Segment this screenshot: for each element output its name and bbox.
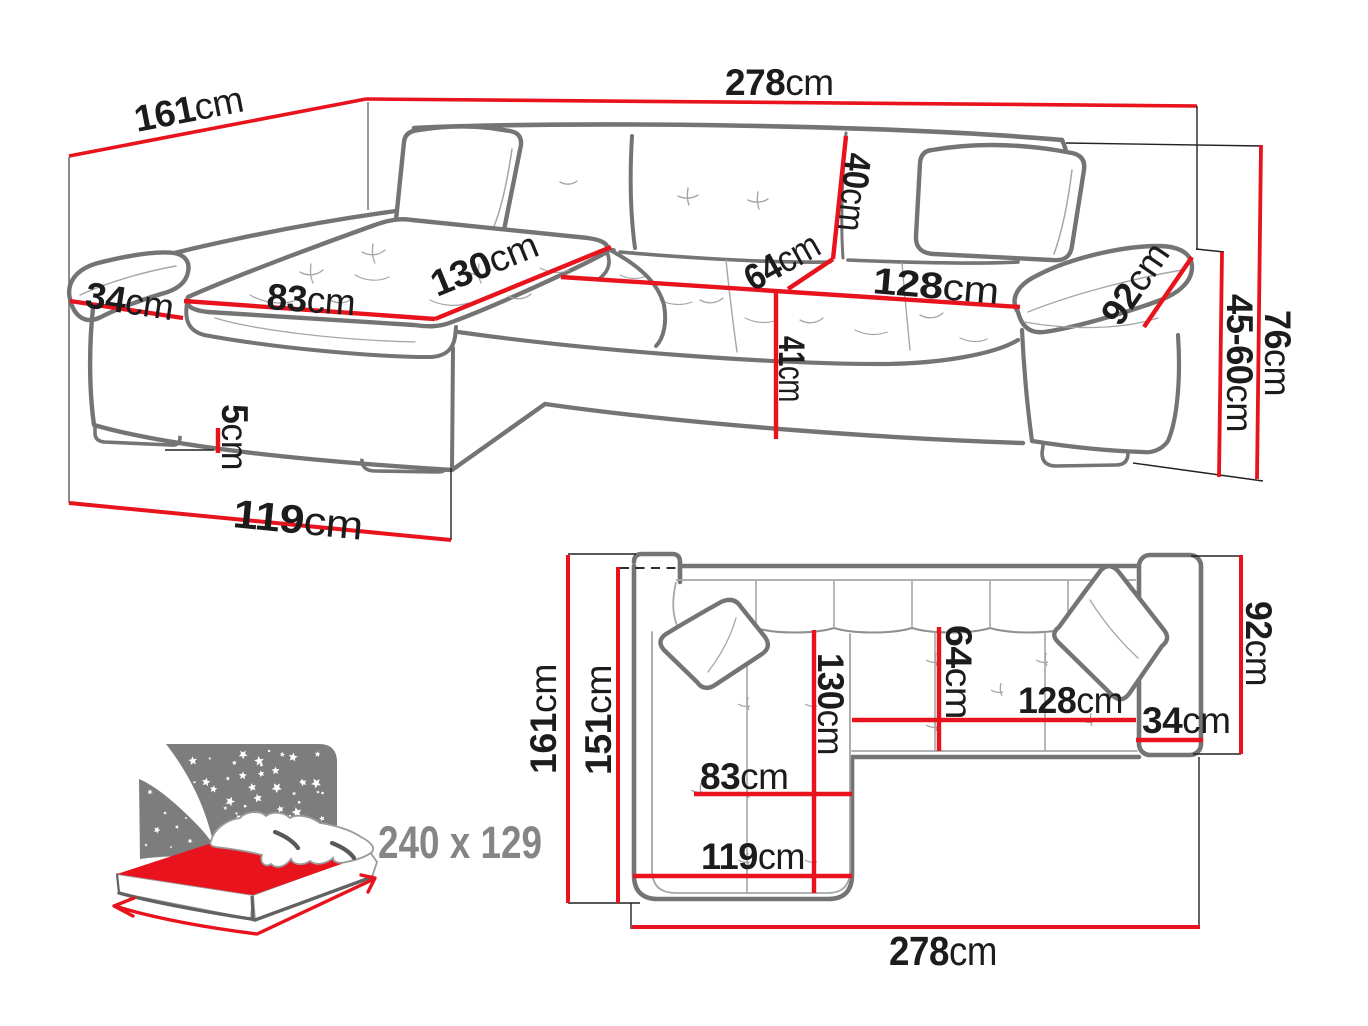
- svg-text:83cm: 83cm: [265, 276, 356, 323]
- svg-text:92cm: 92cm: [1238, 601, 1279, 686]
- svg-text:161cm: 161cm: [523, 664, 564, 774]
- svg-text:34cm: 34cm: [1142, 700, 1230, 741]
- svg-text:5cm: 5cm: [214, 404, 255, 470]
- svg-text:40cm: 40cm: [830, 151, 879, 233]
- svg-text:128cm: 128cm: [1018, 680, 1123, 721]
- svg-text:119cm: 119cm: [701, 836, 805, 877]
- svg-text:76cm: 76cm: [1257, 310, 1298, 396]
- svg-text:240 x 129: 240 x 129: [378, 817, 542, 868]
- svg-text:64cm: 64cm: [938, 625, 979, 719]
- svg-text:278cm: 278cm: [889, 928, 997, 974]
- svg-text:161cm: 161cm: [131, 79, 247, 140]
- svg-text:278cm: 278cm: [725, 62, 834, 103]
- svg-text:45-60cm: 45-60cm: [1219, 294, 1260, 432]
- svg-text:130cm: 130cm: [810, 653, 851, 755]
- svg-text:83cm: 83cm: [700, 756, 788, 797]
- svg-text:119cm: 119cm: [231, 492, 365, 548]
- svg-text:151cm: 151cm: [578, 665, 619, 775]
- svg-text:41cm: 41cm: [771, 336, 812, 402]
